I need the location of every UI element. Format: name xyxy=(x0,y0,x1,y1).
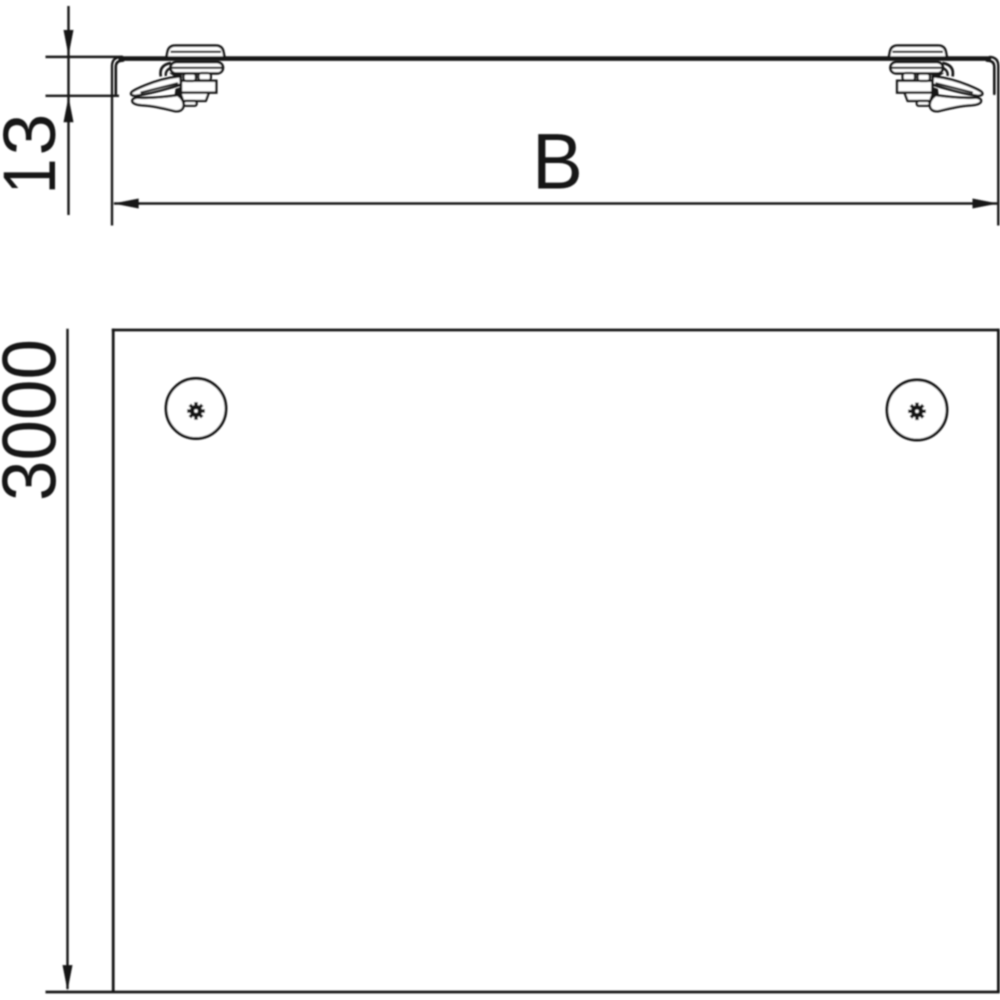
svg-text:3: 3 xyxy=(0,114,71,156)
svg-text:B: B xyxy=(532,118,583,205)
svg-text:1: 1 xyxy=(0,158,71,194)
svg-text:3000: 3000 xyxy=(0,339,73,501)
